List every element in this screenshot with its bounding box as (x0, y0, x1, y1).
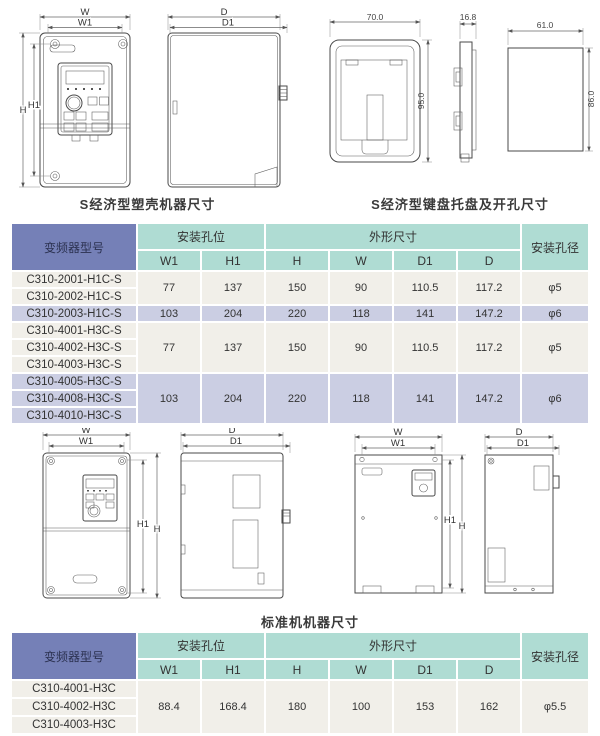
side-dimensions: D D1 (168, 8, 287, 33)
knob (420, 484, 428, 492)
dim-label-hole-height: 86.0 (586, 90, 596, 107)
standard-machine-drawing-large: W W1 H1 H D D1 (305, 428, 600, 608)
cell-h1: 137 (202, 323, 264, 372)
col-header-h: H (266, 660, 328, 679)
model-cell: C310-2002-H1C-S (12, 289, 136, 304)
s-economy-dimension-table: 变频器型号 安装孔位 外形尺寸 安装孔径 W1 H1 H W D1 D C310… (10, 222, 590, 425)
cell-w1: 88.4 (138, 681, 200, 733)
s-economy-machine-drawing: W W1 H H1 D D1 (10, 8, 305, 194)
cell-h: 220 (266, 306, 328, 321)
display-window (66, 71, 104, 84)
cell-h1: 204 (202, 306, 264, 321)
dim-label-d1: D1 (230, 436, 242, 447)
model-cell: C310-4003-H3C (12, 717, 136, 733)
col-header-model: 变频器型号 (12, 633, 136, 679)
col-header-mount: 安装孔位 (138, 224, 264, 249)
keypad-panel (412, 470, 435, 496)
cell-w1: 77 (138, 323, 200, 372)
cell-w1: 77 (138, 272, 200, 304)
knob (66, 95, 82, 111)
col-header-h1: H1 (202, 251, 264, 270)
front-view (40, 33, 130, 187)
dim-label-h: H (459, 521, 466, 532)
model-cell: C310-4001-H3C-S (12, 323, 136, 338)
dim-label-d: D (516, 428, 523, 438)
col-header-w: W (330, 660, 392, 679)
model-cell: C310-4003-H3C-S (12, 357, 136, 372)
cell-h1: 137 (202, 272, 264, 304)
tray-side-view (454, 42, 476, 162)
vent-grille (233, 520, 258, 568)
cell-w: 90 (330, 323, 392, 372)
dim-label-h: H (20, 105, 27, 116)
cell-h1: 204 (202, 374, 264, 423)
vent-grille (233, 475, 260, 508)
display-window (415, 473, 432, 480)
model-cell: C310-4010-H3C-S (12, 408, 136, 423)
model-cell: C310-2001-H1C-S (12, 272, 136, 287)
front-view (355, 455, 442, 593)
col-header-w1: W1 (138, 660, 200, 679)
dim-label-w: W (394, 428, 403, 438)
vent-slot (362, 468, 382, 475)
col-header-d1: D1 (394, 660, 456, 679)
cell-d1: 141 (394, 306, 456, 321)
dim-label-w: W (82, 428, 91, 436)
col-header-d: D (458, 660, 520, 679)
terminal-knob (553, 476, 559, 488)
col-header-hole: 安装孔径 (522, 633, 588, 679)
side-view (485, 455, 559, 593)
dim-label-d: D (229, 428, 236, 436)
model-cell: C310-4008-H3C-S (12, 391, 136, 406)
dim-label-h1: H1 (444, 515, 456, 526)
s-economy-keypad-drawing: 70.0 95.0 16.8 61.0 86.0 (315, 8, 600, 194)
cell-w: 100 (330, 681, 392, 733)
cell-d1: 110.5 (394, 323, 456, 372)
cell-hole: φ5 (522, 272, 588, 304)
col-header-d1: D1 (394, 251, 456, 270)
caption-s-keypad: S经济型键盘托盘及开孔尺寸 (325, 194, 595, 213)
cell-w1: 103 (138, 306, 200, 321)
cell-d1: 153 (394, 681, 456, 733)
vent-grille (534, 466, 549, 490)
col-header-w1: W1 (138, 251, 200, 270)
caption-standard-machine: 标准机机器尺寸 (110, 612, 510, 631)
cell-d: 147.2 (458, 374, 520, 423)
front-view (43, 453, 130, 598)
dim-label-tray-height: 95.0 (416, 92, 426, 109)
vent-grille (488, 548, 505, 582)
dim-label-w1: W1 (391, 438, 405, 449)
cell-hole: φ6 (522, 374, 588, 423)
col-header-outline: 外形尺寸 (266, 224, 520, 249)
manual-page: W W1 H H1 D D1 (0, 0, 600, 736)
tray-front-view (330, 40, 420, 162)
cell-w: 90 (330, 272, 392, 304)
cell-hole: φ6 (522, 306, 588, 321)
cell-d: 147.2 (458, 306, 520, 321)
cell-h: 220 (266, 374, 328, 423)
cell-hole: φ5 (522, 323, 588, 372)
standard-dimension-table: 变频器型号 安装孔位 外形尺寸 安装孔径 W1 H1 H W D1 D C310… (10, 631, 590, 735)
cell-h: 150 (266, 323, 328, 372)
model-cell: C310-4001-H3C (12, 681, 136, 697)
col-header-model: 变频器型号 (12, 224, 136, 270)
cell-d: 162 (458, 681, 520, 733)
dim-label-w1: W1 (79, 436, 93, 447)
col-header-h: H (266, 251, 328, 270)
dim-label-h1: H1 (28, 100, 40, 111)
model-cell: C310-2003-H1C-S (12, 306, 136, 321)
caption-s-machine: S经济型塑壳机器尺寸 (10, 194, 285, 213)
model-cell: C310-4005-H3C-S (12, 374, 136, 389)
dim-label-d1: D1 (222, 18, 234, 29)
cell-hole: φ5.5 (522, 681, 588, 733)
front-dimensions: W W1 H1 H (355, 428, 466, 593)
side-view (181, 453, 290, 598)
cell-h: 150 (266, 272, 328, 304)
dim-label-w: W (81, 8, 90, 18)
col-header-hole: 安装孔径 (522, 224, 588, 270)
dim-label-tray-thickness: 16.8 (460, 12, 477, 22)
keypad-panel (83, 475, 117, 521)
bottom-slot (73, 575, 97, 583)
front-dimensions: W W1 H H1 (19, 8, 130, 187)
dim-label-d1: D1 (517, 438, 529, 449)
cell-d1: 141 (394, 374, 456, 423)
side-view (168, 33, 287, 187)
dim-label-w1: W1 (78, 18, 92, 29)
dim-label-d: D (221, 8, 228, 18)
side-dimensions: D D1 (485, 428, 559, 455)
col-header-w: W (330, 251, 392, 270)
cell-h1: 168.4 (202, 681, 264, 733)
col-header-d: D (458, 251, 520, 270)
model-cell: C310-4002-H3C (12, 699, 136, 715)
cell-h: 180 (266, 681, 328, 733)
display-window (86, 479, 114, 488)
dim-label-h1: H1 (137, 519, 149, 530)
cell-w: 118 (330, 374, 392, 423)
dim-label-hole-width: 61.0 (537, 20, 554, 30)
tray-side-dimensions: 16.8 (460, 12, 477, 39)
model-cell: C310-4002-H3C-S (12, 340, 136, 355)
cell-w1: 103 (138, 374, 200, 423)
dim-label-tray-width: 70.0 (367, 12, 384, 22)
side-dimensions: D D1 (181, 428, 290, 453)
cell-d: 117.2 (458, 272, 520, 304)
opening-view: 61.0 86.0 (508, 20, 596, 151)
cell-d1: 110.5 (394, 272, 456, 304)
col-header-outline: 外形尺寸 (266, 633, 520, 658)
cell-d: 117.2 (458, 323, 520, 372)
cell-w: 118 (330, 306, 392, 321)
col-header-h1: H1 (202, 660, 264, 679)
dim-label-h: H (154, 524, 161, 535)
standard-machine-drawing-small: W W1 H1 H D D1 (5, 428, 305, 608)
tray-dimensions: 70.0 95.0 (330, 12, 432, 162)
col-header-mount: 安装孔位 (138, 633, 264, 658)
